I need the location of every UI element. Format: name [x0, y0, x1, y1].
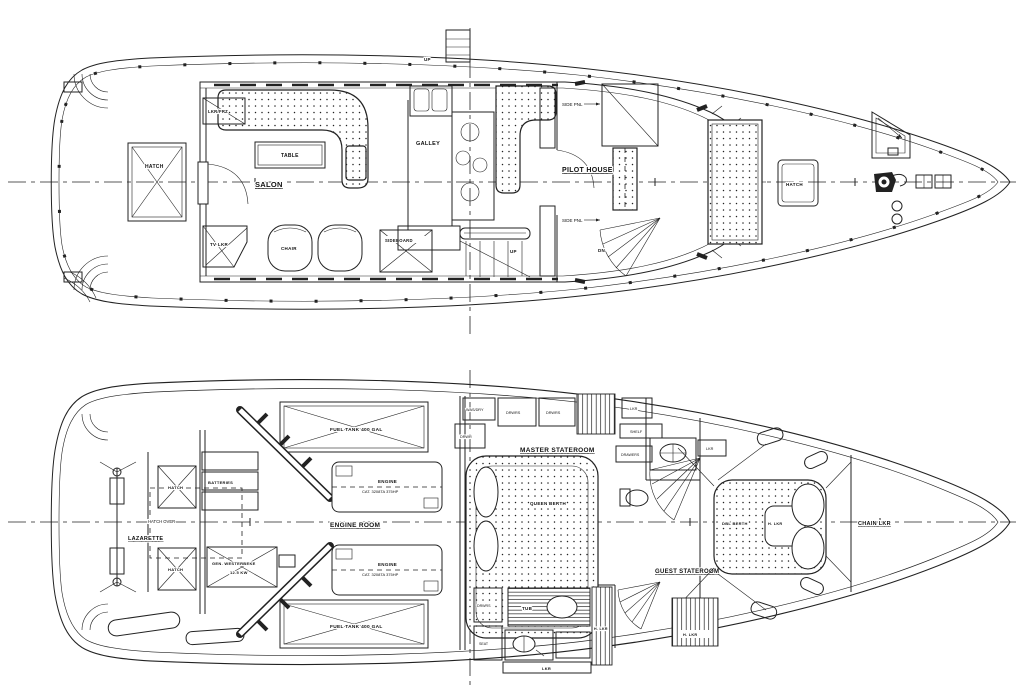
galley-cabinet-aft: [540, 206, 555, 276]
fuel-tank-fwd: FUEL TANK 400 GAL: [280, 402, 428, 452]
generator-label-2: 12.5 KW: [230, 570, 248, 575]
engine-1-label-2: CAT. 3208TA 375HP: [362, 489, 399, 494]
muffler-2: [186, 628, 245, 645]
h-lkr-2-label: H. LKR: [683, 633, 697, 637]
tv-locker: TV LKR: [203, 226, 247, 267]
table-label: TABLE: [281, 153, 299, 159]
engine-2-label-2: CAT. 3208TA 375HP: [362, 572, 399, 577]
drwrs-3-label: DRWRS: [477, 604, 491, 608]
tv-lkr-label: TV LKR: [210, 242, 228, 247]
engine-stbd: ENGINE CAT. 3208TA 375HP: [332, 462, 442, 512]
pilot-house-label: PILOT HOUSE: [562, 167, 613, 174]
salon-settee-corner: [346, 146, 366, 180]
prop-shaft-1: [240, 410, 330, 498]
windlass: [874, 172, 906, 192]
foredeck-seat-box: [708, 120, 762, 244]
master-stateroom-label: MASTER STATEROOM: [520, 447, 595, 454]
lkr-frz-label: LKR/FRZ: [208, 109, 228, 114]
lazarette-hatch-1: HATCH: [158, 466, 196, 508]
lkr-guest-label: LKR: [706, 447, 714, 451]
fuel-tank-fwd-label: FUEL TANK 400 GAL: [330, 427, 383, 433]
foredeck-hatch: HATCH: [778, 160, 818, 206]
lazarette-hatch-2: HATCH: [158, 548, 196, 590]
side-panel-callout-aft: SIDE PNL: [562, 218, 600, 223]
master-stairs: [650, 458, 700, 520]
engine-port: ENGINE CAT. 3208TA 375HP: [332, 545, 442, 595]
engine-room-label: ENGINE ROOM: [330, 522, 380, 529]
stair-up-label: UP: [510, 249, 517, 254]
hatch-2-label: HATCH: [168, 567, 183, 572]
master-cabinet-row: WAS/DRY DRWRS DRWRS DRWR LKR SHELF: [455, 394, 662, 448]
lkr-vanity-label: LKR: [542, 666, 551, 671]
chain-lkr-label: CHAIN LKR: [858, 521, 891, 527]
fuel-tank-aft: FUEL TANK 400 GAL: [280, 600, 428, 648]
head-hanging-locker: [592, 587, 612, 665]
pilothouse-stairs-dn: DN: [598, 218, 660, 276]
salon-chair-1: CHAIR: [268, 225, 312, 271]
main-deck-plan: HATCH TABLE SALON CHAIR T: [8, 28, 1016, 336]
generator: GEN. WESTERBEKE 12.5 KW: [207, 547, 295, 587]
engine-1-label-1: ENGINE: [378, 479, 397, 484]
prop-shaft-2: [240, 546, 330, 634]
aft-hatch-label: HATCH: [145, 164, 164, 170]
hatch-over-label: HATCH OVER: [148, 519, 175, 524]
aft-stairs-port: [74, 74, 108, 108]
anchor-davit: [872, 112, 910, 158]
h-lkr-3-label: H. LKR: [768, 522, 782, 526]
galley: GALLEY UP: [398, 86, 556, 277]
side-pnl-fwd-label: SIDE PNL: [562, 102, 583, 107]
pillow-1: [474, 467, 498, 517]
queen-berth-label: QUEEN BERTH: [530, 501, 566, 506]
hawse-pipe-1: [892, 201, 902, 211]
dn-label: DN: [598, 248, 605, 253]
guest-stateroom: GUEST STATEROOM DBL BERTH H. LKR LKR H. …: [655, 426, 891, 646]
seat-label: SEAT: [479, 642, 489, 646]
fore-deck: HATCH: [708, 112, 951, 244]
battery-bank: BATTERIES: [202, 452, 258, 510]
drwrs-1-label: DRWRS: [506, 411, 521, 415]
up-mast-label: UP: [424, 57, 431, 62]
h-lkr-1-label: H. LKR: [594, 627, 608, 631]
yacht-deck-plans-drawing: HATCH TABLE SALON CHAIR T: [0, 0, 1024, 694]
tub-basin: [547, 596, 577, 618]
sideboard-label: SIDEBOARD: [385, 238, 413, 243]
side-panel-callout-fwd: SIDE PNL: [562, 102, 600, 107]
tub-label: TUB: [522, 606, 533, 611]
fuel-tank-aft-label: FUEL TANK 400 GAL: [330, 624, 383, 630]
lazarette: HATCH HATCH HATCH OVER LAZARETTE: [100, 462, 244, 645]
aft-guest-stairs: [618, 582, 660, 629]
deck-plan-sheet: HATCH TABLE SALON CHAIR T: [0, 0, 1024, 694]
batteries-label: BATTERIES: [208, 480, 233, 485]
engine-2-label-1: ENGINE: [378, 562, 397, 567]
sink-bowl-1: [414, 89, 429, 111]
salon-chair-2: [318, 225, 362, 271]
muffler-1: [107, 611, 181, 637]
lazarette-label: LAZARETTE: [128, 536, 163, 542]
guest-berth: DBL BERTH H. LKR: [714, 480, 826, 574]
dbl-berth-label: DBL BERTH: [722, 521, 748, 526]
lower-deck-plan: HATCH HATCH HATCH OVER LAZARETTE BATTERI…: [8, 370, 1016, 688]
shelf-label: SHELF: [630, 430, 643, 434]
generator-label-1: GEN. WESTERBEKE: [212, 561, 256, 566]
dinette-settee: [496, 86, 556, 193]
steering-gear: [100, 462, 136, 592]
guest-stateroom-label: GUEST STATEROOM: [655, 569, 719, 575]
sideboard: SIDEBOARD: [380, 230, 432, 272]
hatch-1-label: HATCH: [168, 485, 183, 490]
aft-stairs-stbd: [74, 256, 108, 290]
fore-hatch-label: HATCH: [786, 182, 803, 187]
stove-burners: [456, 123, 487, 201]
hawse-pipe-2: [892, 214, 902, 224]
chain-stoppers: [916, 175, 951, 188]
drwr-label: DRWR: [460, 435, 472, 439]
was-dry-label: WAS/DRY: [466, 408, 484, 412]
chair-label: CHAIR: [281, 246, 297, 251]
drwrs-2-label: DRWRS: [546, 411, 561, 415]
side-pnl-aft-label: SIDE PNL: [562, 218, 583, 223]
sink-bowl-2: [432, 89, 447, 111]
sink-counter: [410, 86, 452, 116]
salon-door-swing: [208, 164, 248, 204]
drawers-label: DRAWERS: [621, 453, 640, 457]
engine-room: BATTERIES GEN. WESTERBEKE 12.5 KW FUEL T…: [202, 402, 442, 648]
salon-table: TABLE: [255, 142, 325, 168]
galley-label: GALLEY: [416, 141, 440, 147]
pillow-2: [474, 521, 498, 571]
master-hanging-locker: [577, 394, 615, 434]
companionway-down: UP: [460, 228, 530, 277]
master-stateroom: WAS/DRY DRWRS DRWRS DRWR LKR SHELF MASTE…: [455, 394, 700, 673]
lkr-top-label: LKR: [630, 407, 638, 411]
salon-label: SALON: [255, 180, 283, 189]
guest-hanging-locker: H. LKR: [672, 598, 718, 646]
day-head-toilet: [626, 490, 648, 506]
